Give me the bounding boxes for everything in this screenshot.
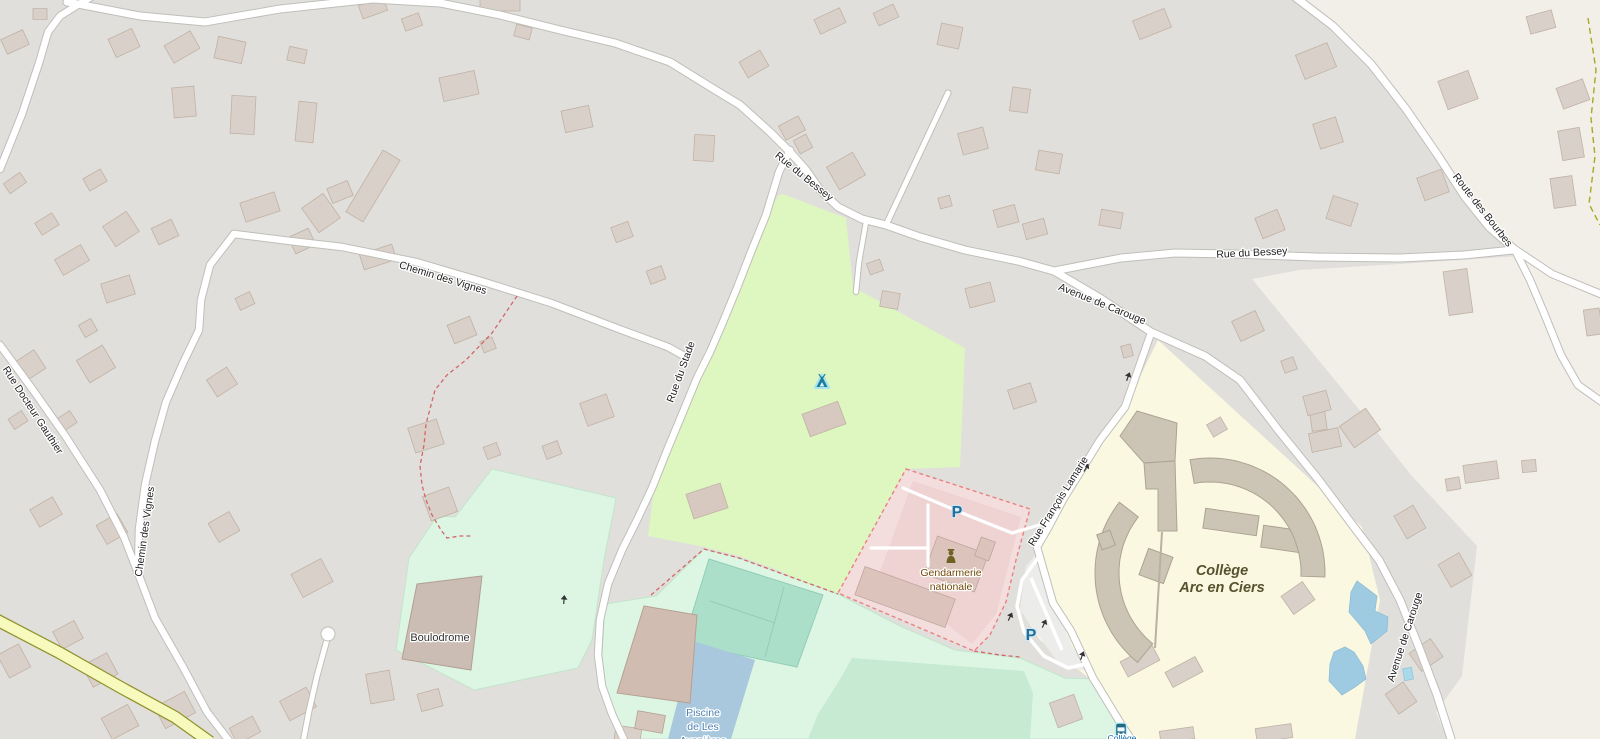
svg-text:Avenières: Avenières	[680, 735, 727, 739]
svg-text:nationale: nationale	[930, 581, 973, 593]
svg-text:Collège: Collège	[1196, 563, 1248, 579]
svg-text:Piscine: Piscine	[686, 707, 720, 719]
svg-text:Gendarmerie: Gendarmerie	[920, 567, 981, 579]
svg-text:de Les: de Les	[687, 721, 719, 733]
svg-text:P: P	[952, 504, 963, 521]
svg-text:Collège: Collège	[1108, 733, 1137, 739]
svg-text:Arc en Ciers: Arc en Ciers	[1178, 580, 1264, 596]
svg-text:P: P	[1026, 627, 1037, 644]
svg-text:Boulodrome: Boulodrome	[410, 632, 469, 644]
